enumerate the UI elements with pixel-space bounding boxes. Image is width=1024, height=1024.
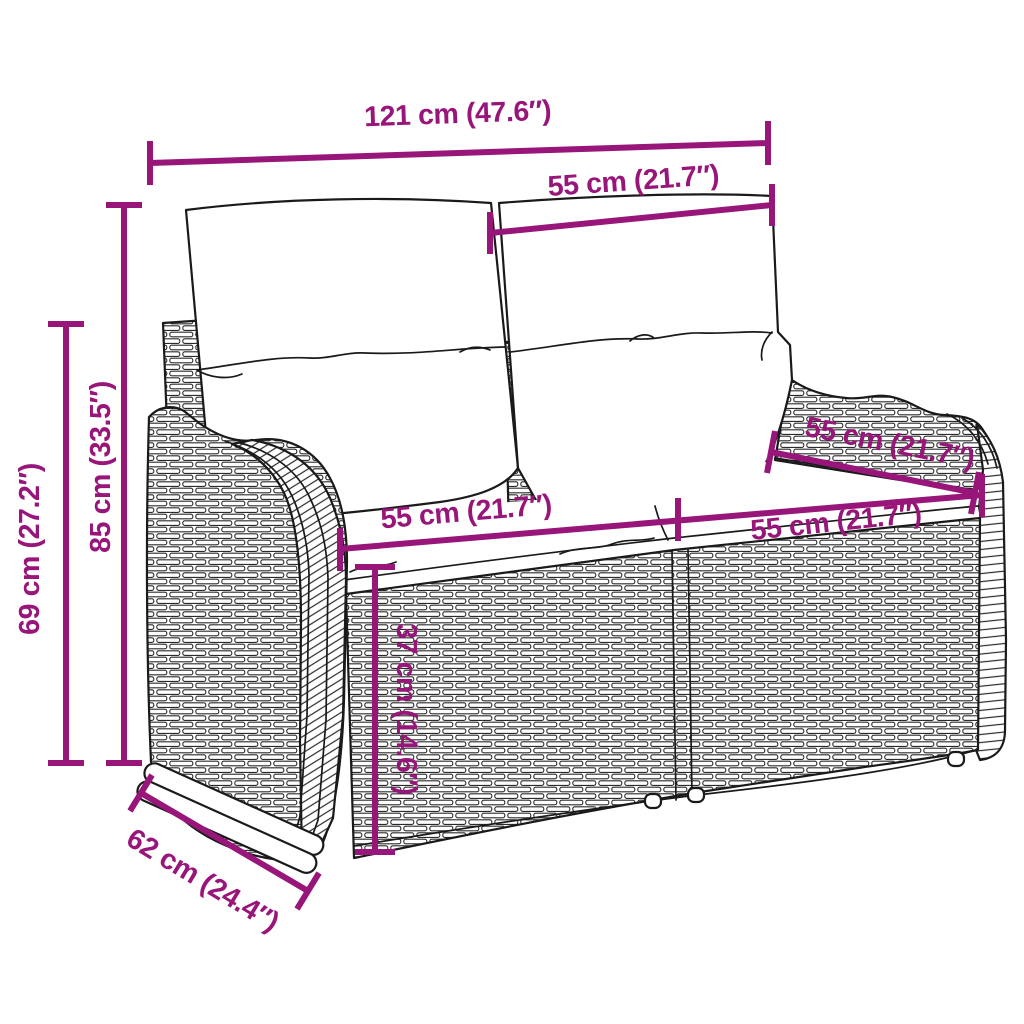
dim-line [150, 143, 768, 163]
dim-backrest-height-label: 85 cm (33.5″) [85, 381, 117, 553]
bench-foot [645, 794, 661, 808]
dim-backrest-height: 85 cm (33.5″) [85, 205, 142, 763]
dim-armrest-height-label: 69 cm (27.2″) [14, 463, 46, 635]
dimension-diagram-page: 121 cm (47.6″) 55 cm (21.7″) 85 cm (33.5… [0, 0, 1024, 1024]
dim-overall-width-label: 121 cm (47.6″) [364, 95, 552, 134]
bench-foot [688, 788, 704, 802]
dim-armrest-height: 69 cm (27.2″) [14, 324, 84, 763]
dim-tick [297, 873, 319, 909]
bench-dimension-diagram: 121 cm (47.6″) 55 cm (21.7″) 85 cm (33.5… [0, 0, 1024, 1024]
bench-foot [948, 752, 964, 766]
dim-seat-height-label: 37 cm (14.6″) [390, 623, 422, 795]
